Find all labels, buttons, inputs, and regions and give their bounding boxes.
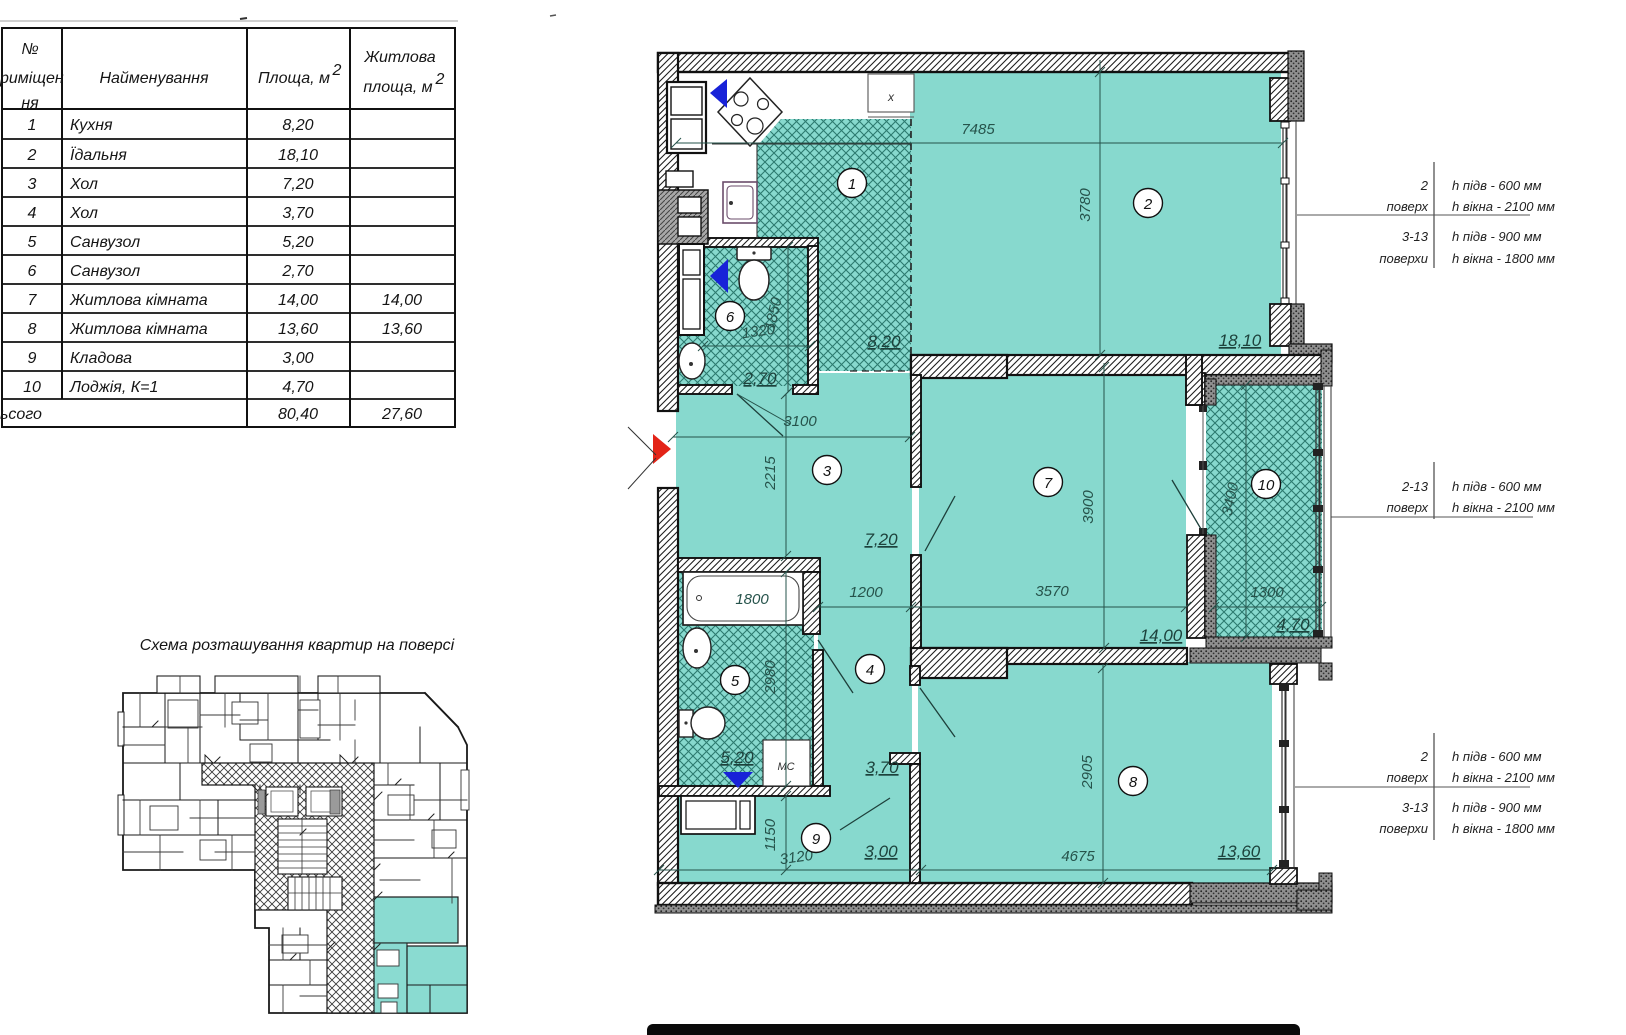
svg-text:поверх: поверх xyxy=(1387,199,1429,214)
svg-text:площа, м: площа, м xyxy=(363,79,432,96)
svg-text:4: 4 xyxy=(28,205,37,222)
svg-text:x: x xyxy=(887,90,895,104)
svg-text:1300: 1300 xyxy=(1250,584,1284,601)
svg-text:27,60: 27,60 xyxy=(381,406,422,423)
svg-text:1200: 1200 xyxy=(849,584,883,601)
svg-text:2: 2 xyxy=(1420,749,1429,764)
svg-text:3,70: 3,70 xyxy=(865,758,899,777)
svg-text:18,10: 18,10 xyxy=(1219,331,1262,350)
svg-text:2-13: 2-13 xyxy=(1401,479,1429,494)
svg-text:10: 10 xyxy=(1258,477,1275,494)
svg-text:2980: 2980 xyxy=(762,660,779,695)
svg-text:поверх: поверх xyxy=(1387,500,1429,515)
svg-text:3-13: 3-13 xyxy=(1402,800,1429,815)
svg-text:2,70: 2,70 xyxy=(281,263,313,280)
svg-text:Житлова кімната: Житлова кімната xyxy=(69,321,208,338)
svg-text:Найменування: Найменування xyxy=(99,70,209,87)
svg-text:3-13: 3-13 xyxy=(1402,229,1429,244)
svg-text:5: 5 xyxy=(731,673,740,690)
svg-text:2: 2 xyxy=(27,147,37,164)
svg-text:1150: 1150 xyxy=(762,818,779,851)
svg-text:1: 1 xyxy=(28,117,37,134)
svg-text:4675: 4675 xyxy=(1061,848,1095,865)
svg-text:7485: 7485 xyxy=(961,121,995,138)
svg-text:3100: 3100 xyxy=(783,413,817,430)
svg-text:h вікна - 2100 мм: h вікна - 2100 мм xyxy=(1452,770,1555,785)
svg-text:1: 1 xyxy=(848,176,856,193)
svg-text:8: 8 xyxy=(1129,774,1138,791)
svg-text:h вікна - 1800 мм: h вікна - 1800 мм xyxy=(1452,821,1555,836)
svg-text:1800: 1800 xyxy=(735,591,769,608)
svg-text:3: 3 xyxy=(823,463,832,480)
svg-text:7: 7 xyxy=(28,292,38,309)
svg-text:h вікна - 1800 мм: h вікна - 1800 мм xyxy=(1452,251,1555,266)
svg-text:80,40: 80,40 xyxy=(278,406,318,423)
svg-text:3570: 3570 xyxy=(1035,583,1069,600)
svg-text:3,70: 3,70 xyxy=(282,205,313,222)
svg-text:поверхи: поверхи xyxy=(1379,821,1428,836)
svg-text:2215: 2215 xyxy=(762,456,779,491)
svg-text:3780: 3780 xyxy=(1077,188,1094,222)
svg-text:2: 2 xyxy=(435,71,445,88)
svg-text:2905: 2905 xyxy=(1079,755,1096,790)
svg-text:h вікна - 2100 мм: h вікна - 2100 мм xyxy=(1452,500,1555,515)
svg-text:h підв - 900 мм: h підв - 900 мм xyxy=(1452,800,1542,815)
svg-text:ня: ня xyxy=(21,95,39,112)
svg-text:14,00: 14,00 xyxy=(382,292,422,309)
svg-text:ьсого: ьсого xyxy=(0,406,42,423)
svg-text:Площа, м: Площа, м xyxy=(258,70,330,87)
svg-text:Кухня: Кухня xyxy=(70,117,113,134)
svg-text:5,20: 5,20 xyxy=(720,748,754,767)
svg-text:h підв - 600 мм: h підв - 600 мм xyxy=(1452,479,1542,494)
svg-text:8,20: 8,20 xyxy=(867,332,901,351)
svg-text:поверх: поверх xyxy=(1387,770,1429,785)
svg-text:7,20: 7,20 xyxy=(282,176,313,193)
svg-text:7: 7 xyxy=(1044,475,1053,492)
svg-text:3,00: 3,00 xyxy=(282,350,313,367)
svg-text:2: 2 xyxy=(1143,196,1153,213)
svg-text:10: 10 xyxy=(23,379,41,396)
svg-text:Хол: Хол xyxy=(69,176,98,193)
svg-text:4,70: 4,70 xyxy=(1276,615,1310,634)
svg-text:18,10: 18,10 xyxy=(278,147,318,164)
svg-text:3: 3 xyxy=(28,176,37,193)
svg-text:поверхи: поверхи xyxy=(1379,251,1428,266)
svg-text:Хол: Хол xyxy=(69,205,98,222)
svg-text:Житлова кімната: Житлова кімната xyxy=(69,292,208,309)
svg-text:7,20: 7,20 xyxy=(864,530,898,549)
svg-text:2: 2 xyxy=(1420,178,1429,193)
svg-text:4,70: 4,70 xyxy=(282,379,313,396)
svg-text:3,00: 3,00 xyxy=(864,842,898,861)
svg-text:6: 6 xyxy=(28,263,37,280)
svg-text:13,60: 13,60 xyxy=(1218,842,1261,861)
svg-text:8: 8 xyxy=(28,321,37,338)
svg-text:h підв - 900 мм: h підв - 900 мм xyxy=(1452,229,1542,244)
svg-text:Схема розташування квартир на: Схема розташування квартир на поверсі xyxy=(140,637,455,654)
svg-text:2: 2 xyxy=(332,62,342,79)
svg-text:14,00: 14,00 xyxy=(278,292,318,309)
svg-text:13,60: 13,60 xyxy=(278,321,318,338)
svg-text:Санвузол: Санвузол xyxy=(70,263,140,280)
svg-text:Їдальня: Їдальня xyxy=(70,146,127,164)
svg-text:h підв - 600 мм: h підв - 600 мм xyxy=(1452,178,1542,193)
svg-text:3900: 3900 xyxy=(1080,490,1097,524)
svg-text:6: 6 xyxy=(726,309,735,326)
svg-text:риміщен: риміщен xyxy=(0,70,64,87)
svg-text:Кладова: Кладова xyxy=(70,350,132,367)
svg-text:14,00: 14,00 xyxy=(1140,626,1183,645)
svg-text:h підв - 600 мм: h підв - 600 мм xyxy=(1452,749,1542,764)
svg-text:9: 9 xyxy=(28,350,37,367)
svg-text:Санвузол: Санвузол xyxy=(70,234,140,251)
svg-text:2,70: 2,70 xyxy=(742,369,777,388)
svg-text:8,20: 8,20 xyxy=(282,117,313,134)
svg-text:9: 9 xyxy=(812,831,821,848)
svg-text:5,20: 5,20 xyxy=(282,234,313,251)
svg-text:Лоджія, К=1: Лоджія, К=1 xyxy=(69,379,158,396)
svg-text:№: № xyxy=(21,41,38,58)
svg-text:Житлова: Житлова xyxy=(363,49,435,66)
svg-text:4: 4 xyxy=(866,662,874,679)
svg-text:5: 5 xyxy=(28,234,37,251)
svg-text:h вікна - 2100 мм: h вікна - 2100 мм xyxy=(1452,199,1555,214)
svg-text:13,60: 13,60 xyxy=(382,321,422,338)
